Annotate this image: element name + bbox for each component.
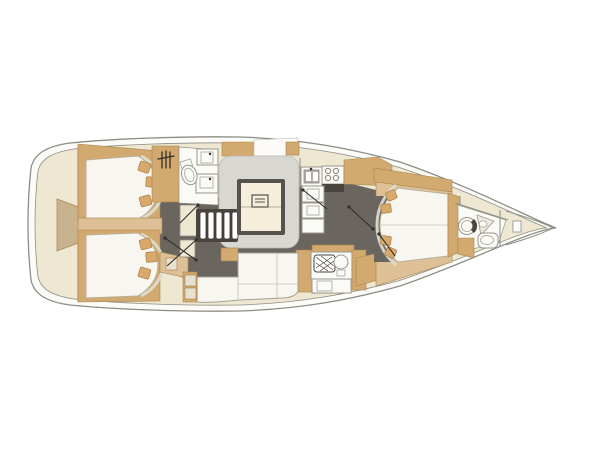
- yacht-floorplan-image: [0, 0, 600, 450]
- top-locker: [286, 142, 299, 155]
- sink-icon: [201, 152, 213, 163]
- pillow: [146, 252, 158, 263]
- floorplan-svg: [0, 0, 600, 450]
- floor-mat: [221, 248, 238, 261]
- toilet-icon: [459, 218, 478, 235]
- locker-door: [307, 206, 319, 215]
- anchor-hatch-icon: [513, 221, 521, 232]
- cabinet-door: [317, 281, 332, 291]
- stair-treads: [200, 212, 238, 239]
- top-locker: [222, 142, 254, 156]
- cushion: [185, 288, 196, 299]
- basin: [306, 172, 311, 181]
- galley-locker: [302, 219, 324, 233]
- seat-base: [337, 270, 345, 276]
- nav-seat-icon: [334, 255, 348, 269]
- cushion: [185, 275, 196, 286]
- faucet-dot: [209, 178, 211, 180]
- pillow: [380, 203, 391, 213]
- oven-front: [322, 184, 344, 192]
- washbasin-bowl: [481, 236, 494, 245]
- sink-basin: [479, 221, 487, 227]
- table-leaf-handle: [252, 195, 268, 207]
- side-shelf: [166, 258, 177, 270]
- stove-icon: [322, 166, 344, 184]
- aft-head: [152, 146, 218, 205]
- saloon-table: [237, 179, 285, 235]
- basin: [313, 172, 318, 181]
- faucet-dot: [310, 168, 313, 171]
- faucet-dot: [209, 153, 211, 155]
